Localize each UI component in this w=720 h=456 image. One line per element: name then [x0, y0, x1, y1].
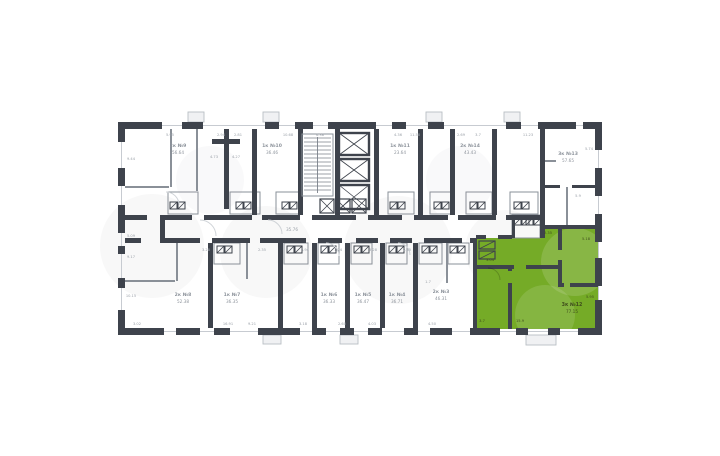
unit-area-label: 36.46 — [266, 150, 278, 155]
dimension-label: 2.35 — [258, 248, 266, 252]
dimension-label: 5.95 — [166, 133, 174, 137]
dimension-label: 2.35 — [544, 231, 552, 235]
dimension-label: 2.69 — [457, 133, 466, 137]
dimension-label: 3.18 — [299, 322, 308, 326]
unit-area-label: 43.43 — [464, 150, 476, 155]
unit-area-label: 57.65 — [562, 158, 574, 163]
unit-label: 1к №7 — [224, 292, 241, 298]
dimension-label: 3.7 — [479, 319, 485, 323]
elevator-shafts — [339, 133, 369, 209]
dimension-label: 10.15 — [126, 294, 136, 298]
dimension-label: 10.68 — [283, 133, 294, 137]
unit-label: 1к №11 — [390, 143, 410, 149]
dimension-label: 3.02 — [133, 322, 141, 326]
dimension-label: 5.9 — [575, 194, 581, 198]
dimension-label: 5.18 — [582, 237, 591, 241]
selected-apartment-area: 77.15 — [566, 309, 578, 314]
dimension-label: 9.17 — [127, 255, 135, 259]
unit-label: 2к №14 — [460, 143, 480, 149]
dimension-label: 6.38 — [316, 133, 325, 137]
unit-area-label: 36.33 — [323, 299, 335, 304]
selected-apartment-label: 3к №12 — [562, 302, 583, 308]
dimension-label: 9.44 — [127, 157, 136, 161]
dimension-label: 3.28 — [202, 248, 211, 252]
dimension-label: 1.7 — [425, 280, 431, 284]
dimension-label: 5.74 — [585, 147, 594, 151]
dimension-label: 11.58 — [410, 133, 421, 137]
unit-area-label: 46.31 — [435, 296, 447, 301]
dimension-label: 4.73 — [210, 155, 218, 159]
unit-label: 2к №9 — [170, 143, 187, 149]
unit-label: 1к №10 — [262, 143, 282, 149]
dimension-label: 11.23 — [523, 133, 533, 137]
dimension-label: 2.60 — [338, 322, 347, 326]
corridor-area-label: 35.76 — [286, 227, 298, 232]
unit-area-label: 23.64 — [394, 150, 406, 155]
unit-label: 2к №3 — [433, 289, 450, 295]
stairs — [302, 134, 333, 196]
unit-area-label: 36.71 — [391, 299, 403, 304]
unit-label: 2к №8 — [175, 292, 192, 298]
dimension-label: 16.91 — [223, 322, 233, 326]
dimension-label: 4.36 — [394, 133, 403, 137]
dimension-label: 5.95 — [586, 295, 594, 299]
dimension-label: 4.03 — [368, 322, 376, 326]
dimension-label: 2.35 — [403, 248, 411, 252]
dimension-label: 3.7 — [475, 133, 481, 137]
dimension-label: 4.50 — [428, 322, 437, 326]
dimension-label: 1.74 — [334, 248, 343, 252]
dimension-label: 3.04 — [486, 258, 495, 262]
dimension-label: 2.94 — [217, 133, 226, 137]
floorplan-svg: 35.76 3к №12 77.15 2к №956.641к №1036.46… — [0, 0, 720, 456]
dimension-label: 4.27 — [232, 155, 240, 159]
unit-label: 3к №13 — [558, 151, 578, 157]
unit-label: 1к №4 — [389, 292, 406, 298]
unit-area-label: 52.38 — [177, 299, 189, 304]
dimension-label: 3.94 — [301, 248, 310, 252]
dimension-label: 9.21 — [248, 322, 256, 326]
unit-label: 1к №5 — [355, 292, 372, 298]
unit-area-label: 36.35 — [226, 299, 238, 304]
dimension-label: 15.9 — [516, 319, 525, 323]
dimension-label: 2.81 — [234, 133, 242, 137]
floorplan-image: 35.76 3к №12 77.15 2к №956.641к №1036.46… — [0, 0, 720, 456]
unit-label: 1к №6 — [321, 292, 338, 298]
unit-area-label: 36.47 — [357, 299, 369, 304]
dimension-label: 3.28 — [369, 248, 378, 252]
unit-area-label: 56.64 — [172, 150, 184, 155]
dimension-label: 5.09 — [127, 234, 136, 238]
